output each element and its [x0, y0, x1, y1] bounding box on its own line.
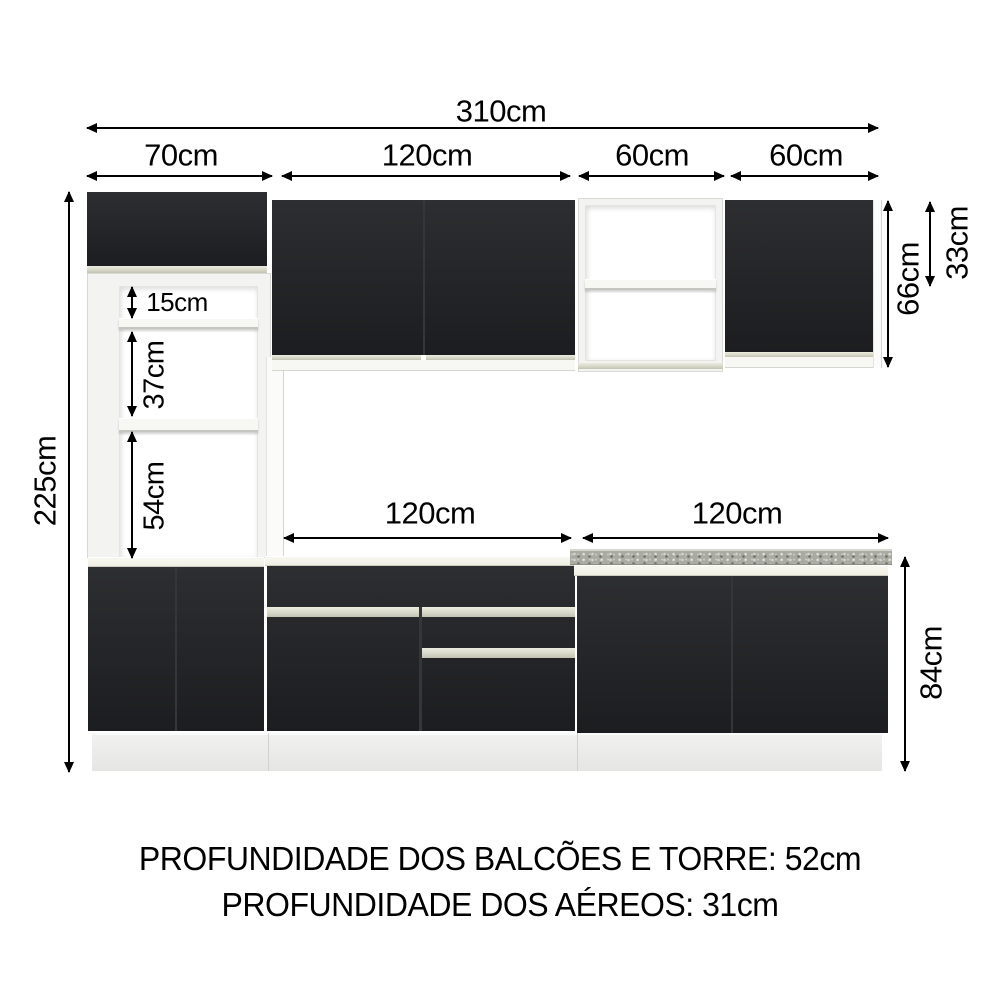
dim-arrow-segment-70 [87, 175, 272, 177]
dim-label-upper-33: 33cm [942, 206, 973, 280]
base-left-handle-drawer-top [422, 607, 575, 617]
dim-label-base-84: 84cm [916, 626, 947, 700]
base-left-handle-drawer-bottom [422, 648, 575, 658]
wall-cabinet-60-bottom-band [725, 357, 873, 368]
dim-arrow-upper-66 [887, 201, 889, 367]
base-right-door-divider [731, 576, 733, 733]
dim-label-section-54: 54cm [141, 462, 170, 531]
dim-label-counter-right-120: 120cm [692, 498, 783, 529]
wall-cabinet-120-bottom-band [272, 360, 575, 371]
dim-label-total-height: 225cm [30, 436, 61, 527]
dim-label-segment-60b: 60cm [769, 140, 843, 171]
wall-open-unit-bottom-strip [578, 363, 723, 369]
dim-arrow-segment-120 [282, 175, 570, 177]
tower-shelf-lower [119, 418, 258, 432]
dim-arrow-section-37 [131, 332, 133, 416]
dim-arrow-segment-60b [731, 175, 878, 177]
dim-label-total-width: 310cm [456, 96, 547, 127]
dim-arrow-counter-left-120 [284, 537, 571, 539]
base-left-front-divider [419, 607, 422, 731]
plinth-seam-left [268, 733, 269, 771]
base-right-granite-countertop [570, 549, 892, 565]
tower-shelf-upper [119, 318, 258, 329]
plinth [92, 733, 882, 771]
tower-top-door-handle [87, 266, 267, 273]
wall-open-unit-shelf [585, 279, 716, 290]
dim-arrow-counter-right-120 [583, 537, 888, 539]
depth-note-upper: PROFUNDIDADE DOS AÉREOS: 31cm [15, 887, 985, 923]
dim-label-section-15: 15cm [146, 289, 208, 315]
tower-side-panel [266, 357, 284, 558]
wall-cabinet-60-door [725, 200, 873, 352]
tower-base-top-strip [88, 557, 264, 567]
tower-base-door-divider [175, 567, 177, 731]
dim-label-section-37: 37cm [141, 341, 170, 410]
dim-label-segment-70: 70cm [144, 140, 218, 171]
base-left-handle-door [267, 607, 419, 617]
plinth-seam-right [577, 733, 578, 771]
base-left-countertop [265, 556, 575, 566]
wall-cabinet-120-door-divider [423, 200, 425, 355]
base-right-top-strip [574, 565, 888, 576]
wall-cabinet-60-side-panel [873, 200, 882, 368]
tower-top-door [87, 192, 267, 266]
dim-label-counter-left-120: 120cm [385, 498, 476, 529]
dim-arrow-upper-33 [929, 202, 931, 286]
dim-arrow-segment-60a [579, 175, 724, 177]
depth-note-base: PROFUNDIDADE DOS BALCÕES E TORRE: 52cm [15, 841, 985, 877]
dim-arrow-base-84 [904, 557, 906, 771]
dim-label-upper-66: 66cm [893, 242, 924, 316]
dim-arrow-total-height [68, 192, 70, 772]
dim-arrow-section-54 [131, 432, 133, 558]
dim-label-segment-60a: 60cm [615, 140, 689, 171]
kitchen-dimension-diagram: 310cm 70cm 120cm 60cm 60cm 225cm 15cm 37… [0, 0, 1000, 1000]
dim-label-segment-120: 120cm [382, 140, 473, 171]
dim-arrow-section-15 [131, 287, 133, 318]
